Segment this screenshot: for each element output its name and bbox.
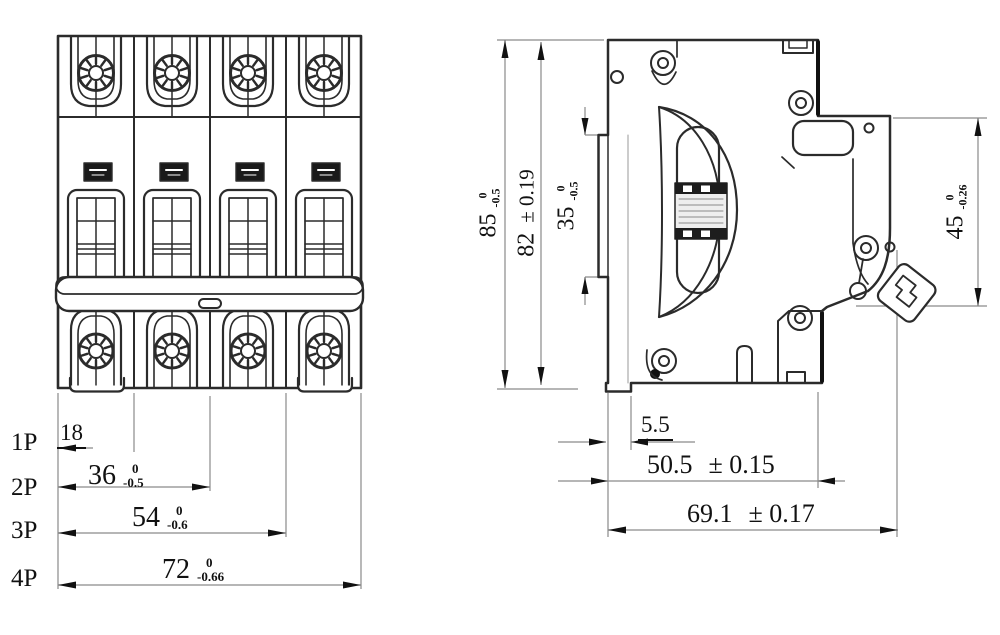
front-view-drawing bbox=[56, 36, 363, 392]
dim-35-label: 35 0-0.5 bbox=[554, 182, 581, 231]
dim-69-1-label: 69.1± 0.17 bbox=[687, 499, 815, 529]
handle-tie-bar bbox=[56, 277, 363, 311]
dim-54-label: 54 0-0.6 bbox=[132, 502, 188, 534]
dim-85-label: 85 0-0.5 bbox=[476, 189, 503, 238]
drawing-canvas bbox=[0, 0, 1000, 635]
technical-drawing-page: 1P 2P 3P 4P 18 36 0-0.5 54 0-0.6 72 0-0.… bbox=[0, 0, 1000, 635]
dim-36-label: 36 0-0.5 bbox=[88, 460, 144, 492]
pole-label-4p: 4P bbox=[11, 565, 37, 593]
side-view-drawing bbox=[599, 40, 939, 392]
dim-50-5-label: 50.5± 0.15 bbox=[647, 450, 775, 480]
pole-label-3p: 3P bbox=[11, 517, 37, 545]
dim-82-label: 82± 0.19 bbox=[514, 169, 541, 257]
dim-18-label: 18 bbox=[57, 420, 86, 449]
rating-label bbox=[675, 183, 727, 239]
side-body-outline bbox=[599, 40, 891, 392]
pole-label-2p: 2P bbox=[11, 474, 37, 502]
pole-label-1p: 1P bbox=[11, 429, 37, 457]
din-rail-clip bbox=[875, 261, 938, 324]
dim-5-5-label: 5.5 bbox=[638, 412, 673, 441]
dim-72-label: 72 0-0.66 bbox=[162, 554, 224, 586]
dim-45-label: 45 0-0.26 bbox=[943, 185, 970, 240]
